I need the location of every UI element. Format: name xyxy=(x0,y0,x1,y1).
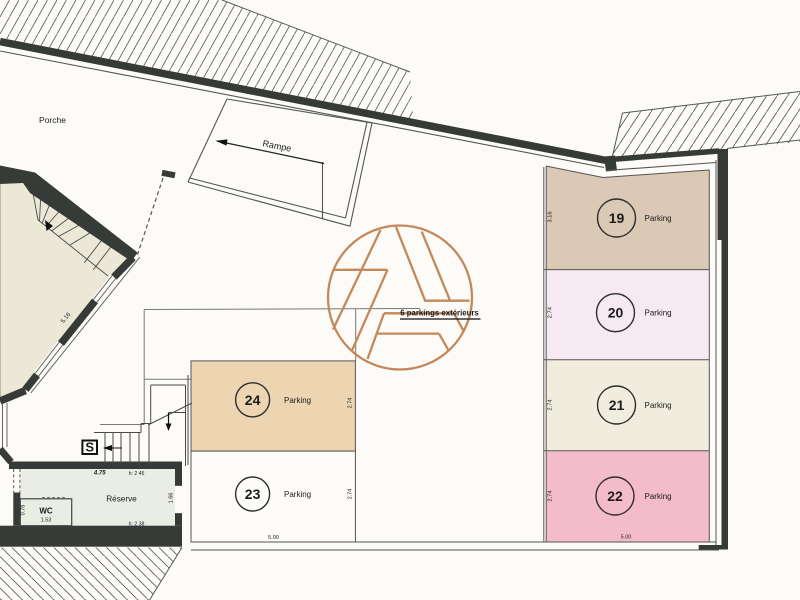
svg-text:4.75: 4.75 xyxy=(93,471,106,477)
svg-text:2.74: 2.74 xyxy=(348,398,354,409)
svg-text:Réserve: Réserve xyxy=(106,495,137,504)
svg-text:Parking: Parking xyxy=(284,396,311,405)
svg-text:Parking: Parking xyxy=(645,309,672,318)
svg-text:2.74: 2.74 xyxy=(548,306,554,318)
svg-text:21: 21 xyxy=(609,397,625,413)
svg-text:3.16: 3.16 xyxy=(548,211,554,222)
svg-text:19: 19 xyxy=(609,210,625,226)
svg-text:S: S xyxy=(85,440,94,455)
svg-text:2.74: 2.74 xyxy=(348,489,354,500)
svg-text:6 parkings extérieurs: 6 parkings extérieurs xyxy=(400,309,479,318)
svg-text:1.66: 1.66 xyxy=(168,493,174,504)
svg-text:Porche: Porche xyxy=(39,115,66,125)
svg-text:24: 24 xyxy=(245,392,261,408)
svg-text:h: 2 45: h: 2 45 xyxy=(129,471,145,477)
svg-text:Parking: Parking xyxy=(284,490,311,499)
svg-text:h: 2 38: h: 2 38 xyxy=(129,522,145,528)
svg-text:Parking: Parking xyxy=(645,401,672,410)
svg-text:5.00: 5.00 xyxy=(621,535,632,541)
svg-text:1.53: 1.53 xyxy=(41,518,52,524)
svg-text:2.74: 2.74 xyxy=(548,490,554,502)
svg-text:Parking: Parking xyxy=(645,214,672,223)
svg-text:2.74: 2.74 xyxy=(548,399,554,411)
svg-text:0.78: 0.78 xyxy=(20,505,26,516)
svg-text:23: 23 xyxy=(245,486,261,502)
svg-text:5.00: 5.00 xyxy=(268,535,279,541)
svg-text:Parking: Parking xyxy=(645,492,672,501)
svg-text:20: 20 xyxy=(608,305,624,321)
svg-text:WC: WC xyxy=(39,507,53,516)
svg-text:22: 22 xyxy=(607,488,623,504)
